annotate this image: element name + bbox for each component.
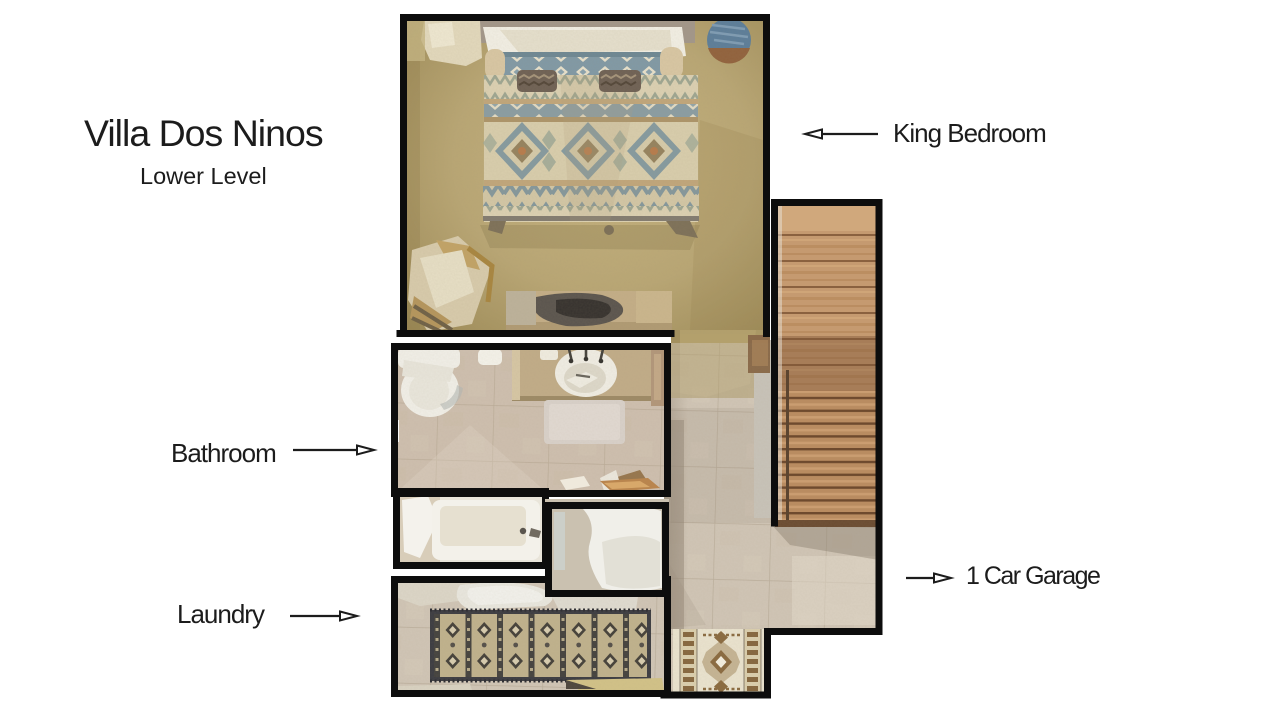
svg-text:1 Car Garage: 1 Car Garage <box>966 562 1100 590</box>
svg-text:Lower Level: Lower Level <box>140 163 267 189</box>
svg-text:Villa Dos Ninos: Villa Dos Ninos <box>84 112 323 154</box>
svg-text:King Bedroom: King Bedroom <box>893 118 1046 148</box>
svg-text:Laundry: Laundry <box>177 599 265 629</box>
svg-text:Bathroom: Bathroom <box>171 438 276 468</box>
